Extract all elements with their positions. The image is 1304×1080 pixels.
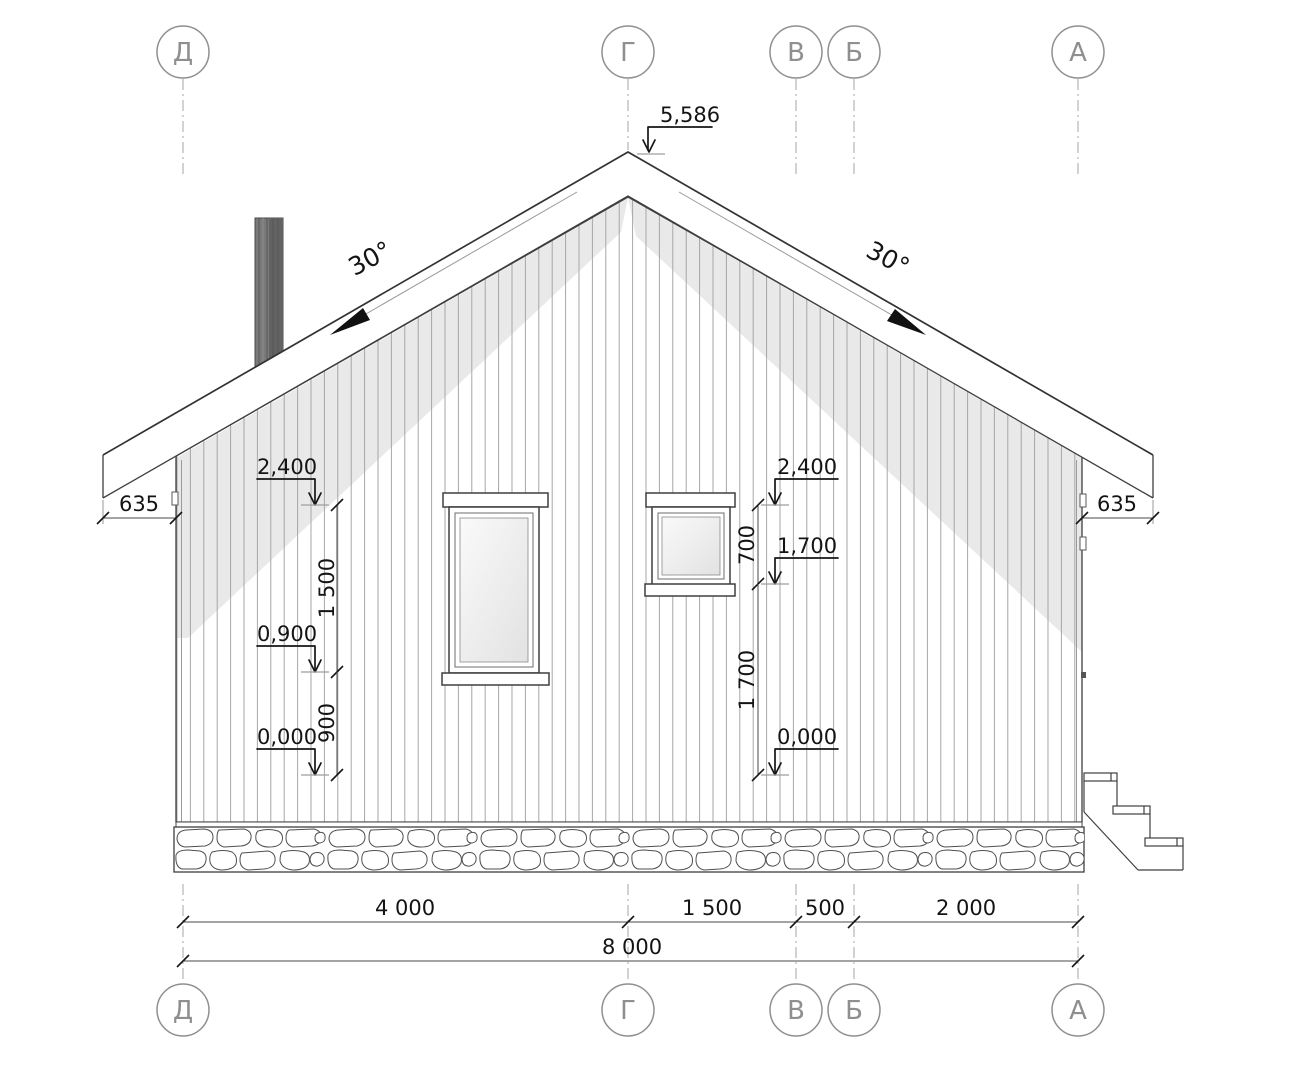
svg-text:635: 635 xyxy=(1097,492,1137,516)
svg-text:Д: Д xyxy=(173,38,193,68)
dim-row-spans: 4 000 1 500 500 2 000 xyxy=(177,896,1084,928)
window-large-sill xyxy=(442,673,549,685)
elevation-mark-peak: 5,586 xyxy=(637,103,720,154)
dim-span-4: 2 000 xyxy=(936,896,996,920)
axis-bubble-bottom-4: Б xyxy=(828,984,880,1036)
gutter-bracket-left xyxy=(172,492,178,505)
axis-bubble-top-5: А xyxy=(1052,26,1104,78)
axis-bubble-bottom-1: Д xyxy=(157,984,209,1036)
facade-elevation-svg: 30° 30° 5,586 2,400 0,900 0,000 2,400 xyxy=(0,0,1304,1080)
svg-text:Б: Б xyxy=(845,996,863,1026)
svg-text:Б: Б xyxy=(845,38,863,68)
svg-text:900: 900 xyxy=(315,703,339,743)
peak-elevation-value: 5,586 xyxy=(660,103,720,127)
gutter-bracket-right-1 xyxy=(1080,494,1086,507)
window-large-header xyxy=(443,493,548,507)
svg-text:635: 635 xyxy=(119,492,159,516)
axis-bubble-top-1: Д xyxy=(157,26,209,78)
svg-text:0,900: 0,900 xyxy=(257,622,317,646)
wall-base-trim xyxy=(176,822,1082,827)
svg-text:1,700: 1,700 xyxy=(777,534,837,558)
svg-text:В: В xyxy=(787,996,805,1026)
facade-drawing-page: 30° 30° 5,586 2,400 0,900 0,000 2,400 xyxy=(0,0,1304,1080)
wall-fixture-right xyxy=(1081,672,1086,678)
svg-text:Г: Г xyxy=(620,996,636,1026)
window-large-glass xyxy=(460,518,528,662)
dim-span-2: 1 500 xyxy=(682,896,742,920)
svg-text:700: 700 xyxy=(735,525,759,565)
window-small-sill xyxy=(645,584,735,596)
svg-text:А: А xyxy=(1069,38,1087,68)
axis-bubble-top-4: Б xyxy=(828,26,880,78)
window-small-header xyxy=(646,493,735,507)
dim-overhang-left: 635 xyxy=(97,492,182,524)
svg-text:А: А xyxy=(1069,996,1087,1026)
axis-bubble-bottom-5: А xyxy=(1052,984,1104,1036)
dim-span-1: 4 000 xyxy=(375,896,435,920)
window-small xyxy=(645,493,735,596)
axis-bubble-bottom-3: В xyxy=(770,984,822,1036)
window-small-glass xyxy=(662,517,720,575)
slope-value-left: 30° xyxy=(344,235,397,281)
dim-span-3: 500 xyxy=(805,896,845,920)
svg-text:0,000: 0,000 xyxy=(257,725,317,749)
gutter-bracket-right-2 xyxy=(1080,537,1086,550)
stairs xyxy=(1084,773,1183,870)
chimney xyxy=(255,218,283,372)
svg-text:1 700: 1 700 xyxy=(735,650,759,710)
axis-bubble-top-2: Г xyxy=(602,26,654,78)
svg-text:Г: Г xyxy=(620,38,636,68)
svg-text:2,400: 2,400 xyxy=(257,455,317,479)
axis-bubbles-bottom: Д Г В Б А xyxy=(157,984,1104,1036)
dim-overhang-right: 635 xyxy=(1076,492,1159,524)
axis-bubbles-top: Д Г В Б А xyxy=(157,26,1104,78)
svg-text:2,400: 2,400 xyxy=(777,455,837,479)
dim-row-total: 8 000 xyxy=(177,935,1084,967)
axis-bubble-bottom-2: Г xyxy=(602,984,654,1036)
svg-text:1 500: 1 500 xyxy=(315,558,339,618)
svg-text:Д: Д xyxy=(173,996,193,1026)
window-large xyxy=(442,493,549,685)
axis-bubble-top-3: В xyxy=(770,26,822,78)
dim-total: 8 000 xyxy=(602,935,662,959)
slope-value-right: 30° xyxy=(862,235,915,281)
foundation xyxy=(174,827,1084,872)
svg-text:0,000: 0,000 xyxy=(777,725,837,749)
svg-text:В: В xyxy=(787,38,805,68)
